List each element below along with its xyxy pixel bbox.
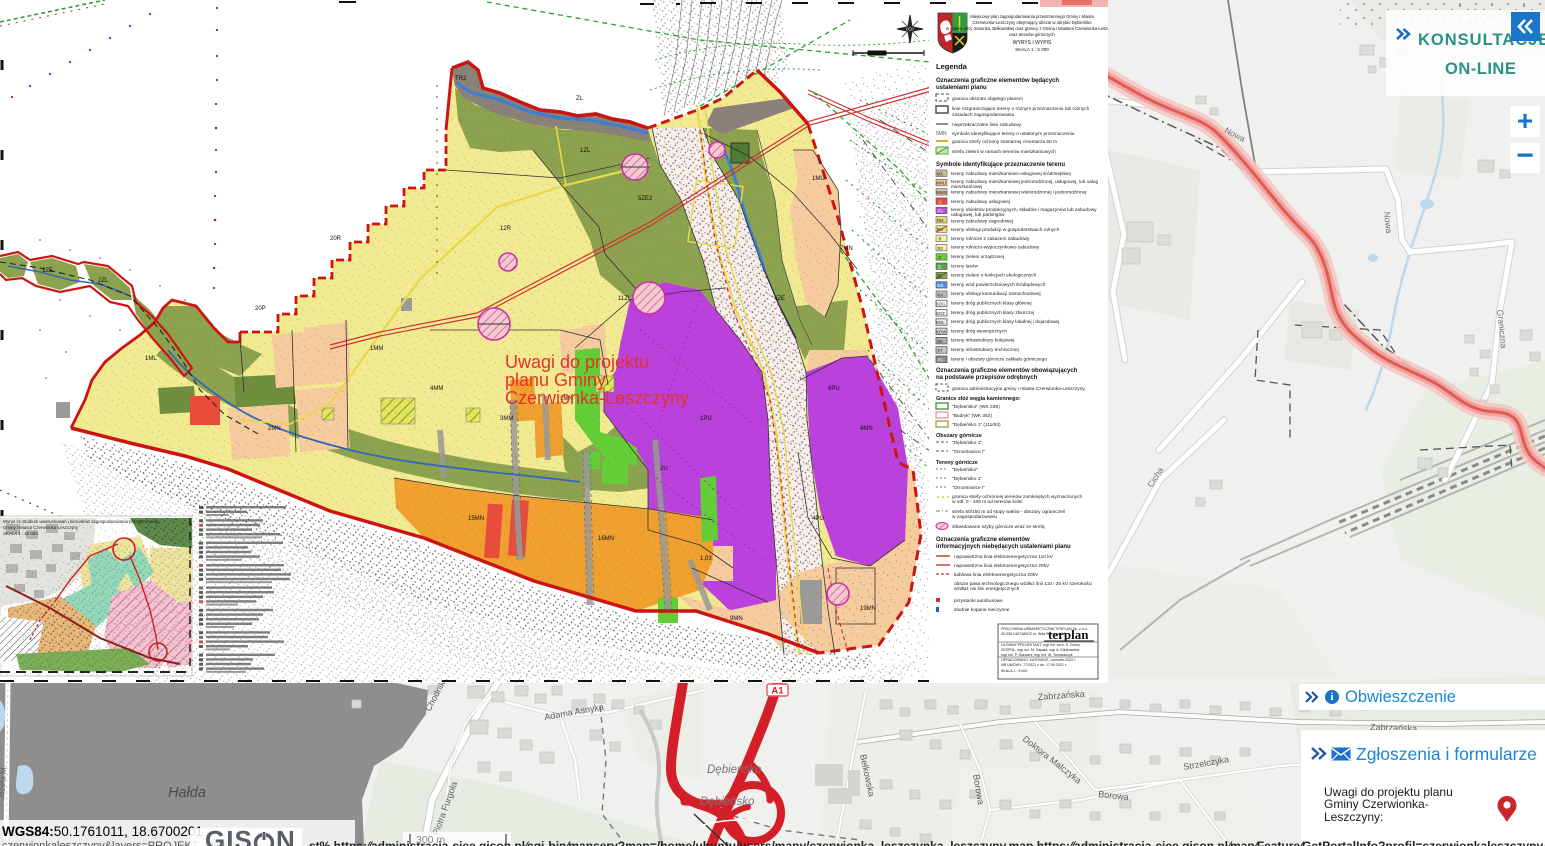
svg-text:KDW: KDW	[936, 330, 946, 335]
svg-text:tereny zabudowy zagrodowej: tereny zabudowy zagrodowej	[951, 219, 1013, 225]
svg-text:KT: KT	[938, 348, 944, 353]
svg-text:strefa zieleni w ramach terenó: strefa zieleni w ramach terenów mieszkan…	[952, 149, 1056, 155]
svg-text:Hałda: Hałda	[168, 785, 206, 801]
svg-text:3MM: 3MM	[500, 416, 513, 422]
svg-text:SKALA 1 : 5 000: SKALA 1 : 5 000	[1015, 47, 1049, 52]
svg-text:1ZL: 1ZL	[580, 148, 591, 154]
svg-text:przystanki autobusowe: przystanki autobusowe	[954, 598, 1003, 604]
svg-text:1MM: 1MM	[370, 346, 383, 352]
svg-text:linie rozgraniczające tereny o: linie rozgraniczające tereny o różnym pr…	[952, 106, 1090, 112]
svg-text:granica obszaru objętego plane: granica obszaru objętego planem	[952, 96, 1023, 102]
svg-text:Czerwionka-Leszczyny: Czerwionka-Leszczyny	[505, 388, 689, 408]
svg-text:zlikwidowane szyby górnicze wr: zlikwidowane szyby górnicze wraz ze stre…	[952, 524, 1045, 530]
svg-text:tereny zabudowy mieszkaniowo-u: tereny zabudowy mieszkaniowo-usługowej ś…	[951, 171, 1071, 177]
svg-text:symbole identyfikujące tereny: symbole identyfikujące tereny o ustalony…	[952, 131, 1075, 137]
svg-text:2ZL: 2ZL	[98, 278, 109, 284]
svg-text:informacyjnych niebędących ust: informacyjnych niebędących ustaleniami p…	[936, 544, 1071, 550]
svg-text:wzdłuż osi linii energetycznyc: wzdłuż osi linii energetycznych	[954, 586, 1020, 592]
svg-text:2MN: 2MN	[268, 426, 281, 432]
svg-text:MS: MS	[937, 171, 943, 176]
svg-text:zasadach zagospodarowania: zasadach zagospodarowania	[952, 112, 1014, 118]
svg-text:1ML: 1ML	[145, 356, 157, 362]
svg-text:20P: 20P	[255, 306, 266, 312]
svg-text:Obszary górnicze: Obszary górnicze	[936, 433, 982, 439]
svg-text:KDG: KDG	[936, 302, 945, 307]
svg-text:40-036 KATOWICE ul. Wita Stwos: 40-036 KATOWICE ul. Wita Stwosza 6/7	[1001, 632, 1066, 636]
svg-text:7MN: 7MN	[840, 246, 853, 252]
svg-text:KA: KA	[938, 292, 944, 297]
svg-text:Z: Z	[939, 255, 942, 260]
svg-text:tereny dróg wewnętrznych: tereny dróg wewnętrznych	[951, 328, 1007, 334]
svg-text:tereny obsługi produkcji w gos: tereny obsługi produkcji w gospodarstwac…	[951, 227, 1060, 233]
svg-text:"Dębieńsko 1" (111/93): "Dębieńsko 1" (111/93)	[952, 422, 1001, 428]
svg-text:2U: 2U	[660, 466, 668, 472]
svg-text:Oznaczenia graficzne elementów: Oznaczenia graficzne elementów będących	[936, 78, 1059, 84]
svg-text:R2: R2	[938, 246, 944, 251]
svg-text:"Dębieńsko 1": "Dębieńsko 1"	[952, 476, 982, 482]
svg-text:na podstawie przepisów odrębny: na podstawie przepisów odrębnych	[936, 375, 1038, 381]
svg-text:WYRYS I WYPIS: WYRYS I WYPIS	[1013, 40, 1052, 46]
svg-text:12R: 12R	[500, 226, 512, 232]
svg-text:4MN: 4MN	[860, 426, 873, 432]
svg-text:w odl. 0 - 100 m od terenów ko: w odl. 0 - 100 m od terenów kolei	[952, 499, 1022, 505]
svg-text:NR UMOWY: 77/2021 z dn. 17.09.: NR UMOWY: 77/2021 z dn. 17.09.2021 r.	[1001, 663, 1067, 667]
svg-text:PU: PU	[938, 209, 944, 214]
svg-text:ZESPÓŁ: mgr inż. M. Kapała, mg: ZESPÓŁ: mgr inż. M. Kapała, mgr A. Kierk…	[1001, 647, 1079, 652]
svg-text:RM: RM	[937, 218, 944, 223]
svg-text:Tereny górnicze: Tereny górnicze	[936, 460, 978, 466]
svg-text:"Budryk" (WK 352): "Budryk" (WK 352)	[952, 413, 992, 419]
svg-text:tereny zabudowy mieszkaniowej: tereny zabudowy mieszkaniowej wielorodzi…	[951, 190, 1086, 196]
svg-text:w zagospodarowaniu: w zagospodarowaniu	[952, 514, 997, 520]
svg-text:5MN: 5MN	[936, 131, 947, 137]
svg-text:Czerwionka-Leszczyny obejmując: Czerwionka-Leszczyny obejmujący obszar w…	[972, 20, 1092, 25]
svg-text:tereny dróg publicznych klasy: tereny dróg publicznych klasy lokalnej i…	[951, 319, 1059, 325]
svg-text:Oznaczenia graficzne elementów: Oznaczenia graficzne elementów obowiązuj…	[936, 368, 1078, 374]
svg-text:R: R	[939, 237, 942, 242]
svg-text:20R: 20R	[330, 236, 342, 242]
svg-text:kablowa linia elektroenergetyc: kablowa linia elektroenergetyczna 20kV	[954, 572, 1039, 578]
svg-text:5ZE2: 5ZE2	[638, 196, 653, 202]
svg-text:Dębieńsko: Dębieńsko	[700, 796, 755, 808]
svg-text:"Ornontowice I": "Ornontowice I"	[952, 485, 985, 491]
svg-text:11ZL: 11ZL	[618, 296, 632, 302]
svg-text:19MN: 19MN	[860, 606, 876, 612]
svg-text:tereny lasów: tereny lasów	[951, 263, 978, 269]
svg-text:tereny zieleni o funkcjach eko: tereny zieleni o funkcjach ekologicznych	[951, 273, 1037, 279]
svg-text:tereny infrastruktury technicz: tereny infrastruktury technicznej	[951, 347, 1019, 353]
svg-text:SKALA 1 : 5 000: SKALA 1 : 5 000	[1001, 669, 1027, 673]
svg-text:Granice złóż węgla kamiennego:: Granice złóż węgla kamiennego:	[936, 396, 1021, 402]
svg-text:tereny zabudowy usługowej: tereny zabudowy usługowej	[951, 199, 1010, 205]
svg-text:16MN: 16MN	[598, 536, 614, 542]
svg-text:"Dębieńsko" (WK 339): "Dębieńsko" (WK 339)	[952, 404, 1000, 410]
svg-text:GIS: GIS	[205, 830, 253, 846]
svg-text:N: N	[276, 830, 295, 846]
svg-text:ZE: ZE	[937, 274, 943, 279]
svg-text:"Dębieńsko 1": "Dębieńsko 1"	[952, 440, 982, 446]
svg-text:WS: WS	[937, 283, 944, 288]
svg-text:tereny rolnicze z zakazem zabu: tereny rolnicze z zakazem zabudowy	[951, 236, 1030, 242]
svg-text:ZL: ZL	[938, 264, 944, 269]
svg-text:8PU: 8PU	[828, 386, 840, 392]
svg-text:A1: A1	[771, 686, 784, 697]
svg-text:Uwagi do projektu: Uwagi do projektu	[505, 352, 649, 372]
svg-text:OPRACOWANO: KATOWICE, czerwiec: OPRACOWANO: KATOWICE, czerwiec 2022 r.	[1001, 658, 1076, 662]
svg-text:tereny wód powierzchniowych śr: tereny wód powierzchniowych śródlądowych	[951, 282, 1046, 288]
svg-text:Symbole identyfikujące przezna: Symbole identyfikujące przeznaczenie ter…	[936, 162, 1065, 168]
svg-text:mieszkaniowej: mieszkaniowej	[951, 184, 982, 190]
svg-text:tereny dróg publicznych klasy: tereny dróg publicznych klasy zbiorczej	[951, 310, 1034, 316]
svg-text:napowietrzna linia elektroener: napowietrzna linia elektroenergetyczna 1…	[954, 554, 1054, 560]
svg-text:usługowej, lub parkingów: usługowej, lub parkingów	[951, 212, 1005, 218]
svg-text:tereny zieleni urządzonej: tereny zieleni urządzonej	[951, 254, 1004, 260]
svg-text:1PU: 1PU	[700, 416, 712, 422]
svg-text:TR2: TR2	[455, 76, 467, 82]
svg-text:Dębieńsko: Dębieńsko	[707, 764, 762, 776]
svg-text:napowietrzna linia elektroener: napowietrzna linia elektroenergetyczna 2…	[954, 563, 1050, 569]
svg-text:tereny i obszary górnicze zakł: tereny i obszary górnicze zakładu górnic…	[951, 356, 1047, 362]
svg-text:tereny dróg publicznych klasy: tereny dróg publicznych klasy głównej	[951, 301, 1032, 307]
svg-text:w rejonie ulicy Jesionka, Bełk: w rejonie ulicy Jesionka, Bełkowskiej or…	[946, 26, 1119, 31]
svg-text:nieprzekraczalne linie zabudow: nieprzekraczalne linie zabudowy	[952, 122, 1022, 128]
svg-text:1ZE: 1ZE	[42, 268, 53, 274]
svg-text:Miejscowy plan zagospodarowani: Miejscowy plan zagospodarowania przestrz…	[970, 14, 1094, 19]
svg-text:4MM: 4MM	[430, 386, 443, 392]
svg-text:granica administracyjna gminy: granica administracyjna gminy i miasta C…	[952, 386, 1085, 392]
svg-text:15MN: 15MN	[468, 516, 484, 522]
svg-text:KK: KK	[938, 339, 944, 344]
svg-text:studnie kopane nieczynne: studnie kopane nieczynne	[954, 607, 1010, 613]
svg-text:PG: PG	[938, 357, 944, 362]
svg-text:1,03: 1,03	[700, 556, 712, 562]
svg-text:mgr inż. P. Gancarz, mgr inż.: mgr inż. P. Gancarz, mgr inż. M. Tomaszc…	[1001, 653, 1073, 657]
svg-text:MNU: MNU	[936, 181, 946, 186]
svg-text:ZL: ZL	[576, 96, 584, 102]
svg-text:RU: RU	[937, 227, 943, 232]
svg-text:"Dębieńsko": "Dębieńsko"	[952, 467, 978, 473]
svg-text:1MU: 1MU	[812, 176, 825, 182]
svg-text:KDL: KDL	[936, 320, 945, 325]
svg-text:4ZE: 4ZE	[774, 296, 785, 302]
svg-text:"Ornontowice I": "Ornontowice I"	[952, 449, 985, 455]
svg-text:PRACOWNIA URBANISTYCZNA TERPLA: PRACOWNIA URBANISTYCZNA TERPLAN Sp. z o.…	[1001, 627, 1088, 631]
svg-text:Legenda: Legenda	[936, 62, 968, 71]
svg-text:planu Gminy: planu Gminy	[505, 370, 606, 390]
svg-text:9MN: 9MN	[730, 616, 743, 622]
svg-text:oraz terenów górniczych: oraz terenów górniczych	[1009, 32, 1055, 37]
svg-text:GŁÓWNY PROJEKTANT: mgr inż. ar: GŁÓWNY PROJEKTANT: mgr inż. arch. K. Gór…	[1001, 642, 1080, 647]
svg-text:Oznaczenia graficzne elementów: Oznaczenia graficzne elementów	[936, 537, 1030, 543]
svg-text:4PG: 4PG	[812, 516, 824, 522]
svg-text:tereny obsługi komunikacji sam: tereny obsługi komunikacji samochodowej	[951, 291, 1041, 297]
svg-text:KDZ: KDZ	[936, 311, 945, 316]
svg-text:ustaleniami planu: ustaleniami planu	[936, 85, 987, 91]
svg-text:MWN: MWN	[936, 190, 946, 195]
svg-text:tereny rolniczo-wypoczynkowo-z: tereny rolniczo-wypoczynkowo-zabudowy	[951, 244, 1040, 250]
svg-text:U: U	[939, 199, 942, 204]
svg-text:granica strefy ochrony sanitar: granica strefy ochrony sanitarnej cmenta…	[952, 139, 1057, 145]
svg-text:tereny infrastruktury kolejowe: tereny infrastruktury kolejowej	[951, 338, 1014, 344]
